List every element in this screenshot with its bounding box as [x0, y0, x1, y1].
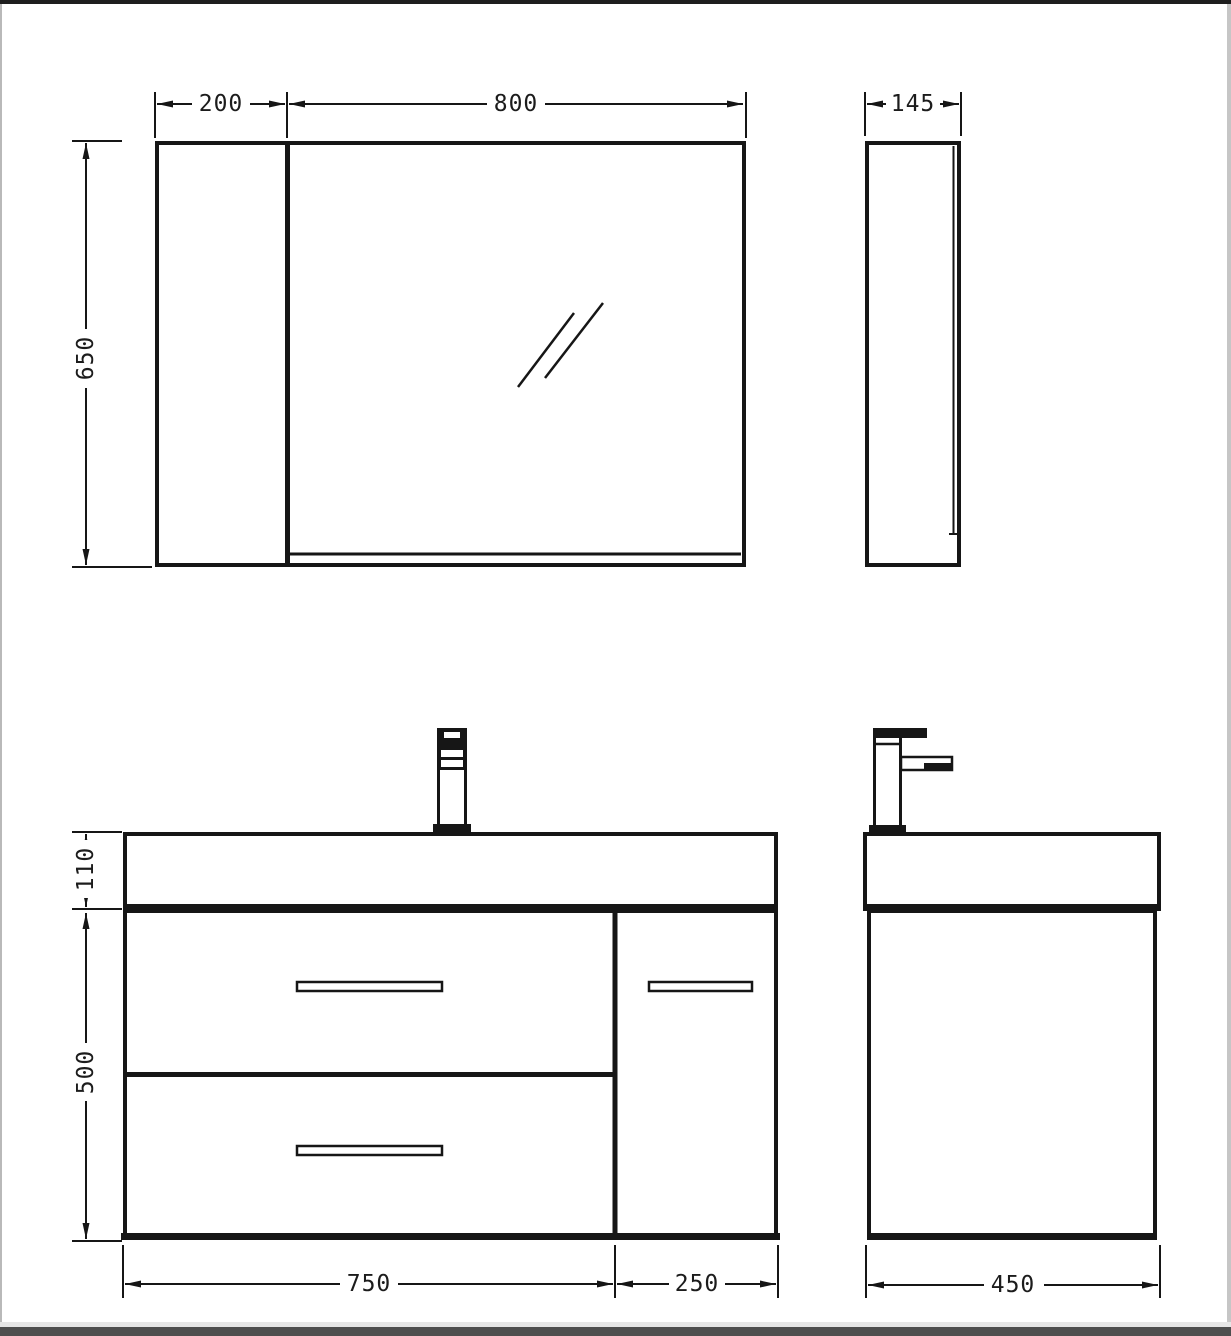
faucet-side-spout-tip [924, 763, 952, 771]
arrow-down [83, 1223, 90, 1239]
dimension-basin-height: 110 [72, 832, 122, 909]
arrow-right [1142, 1282, 1158, 1289]
dimension-mirror-glass-width: 800 [289, 91, 746, 138]
vanity-side-body-outline [869, 911, 1155, 1237]
arrow-left [157, 101, 173, 108]
mirror-front-view [157, 141, 744, 565]
faucet-front-base [433, 824, 471, 832]
dimension-mirror-depth: 145 [865, 91, 961, 136]
vanity-side-body-bottom-edge [867, 1233, 1157, 1240]
drawer-1-handle [297, 982, 442, 991]
vanity-side-view [863, 728, 1161, 1240]
dim-label-drawer-section-width: 750 [347, 1271, 392, 1297]
dim-label-cabinet-depth: 450 [991, 1272, 1036, 1298]
mirror-cabinet-outline [157, 143, 744, 565]
faucet-side [869, 728, 952, 832]
dim-label-mirror-glass-width: 800 [494, 91, 539, 117]
dimension-mirror-height: 650 [72, 141, 152, 567]
arrow-right [727, 101, 743, 108]
dim-label-mirror-depth: 145 [891, 91, 936, 117]
technical-drawing: 200 800 650 [0, 0, 1231, 1336]
arrow-down [83, 549, 90, 565]
arrow-left [868, 1282, 884, 1289]
faucet-front-notch [444, 732, 460, 738]
vanity-side-basin-outline [865, 834, 1159, 909]
vanity-body-bottom-edge [121, 1233, 780, 1240]
arrow-left [125, 1281, 141, 1288]
dimension-cabinet-height: 500 [72, 913, 122, 1241]
arrow-right [269, 101, 285, 108]
arrow-right [760, 1281, 776, 1288]
faucet-front [433, 728, 471, 832]
dim-label-mirror-left-width: 200 [199, 91, 244, 117]
faucet-front-slot-1 [441, 750, 463, 757]
page-border-top [0, 0, 1231, 4]
faucet-front-slot-2 [441, 760, 463, 767]
vanity-front-view [121, 728, 780, 1240]
page-border-bottom-dark [0, 1327, 1231, 1336]
door-handle [649, 982, 752, 991]
dimension-door-section-width: 250 [617, 1245, 778, 1298]
arrow-left [289, 101, 305, 108]
arrow-right [943, 101, 959, 108]
dim-label-basin-height: 110 [73, 847, 99, 892]
drawer-2-handle [297, 1146, 442, 1155]
dimension-drawer-section-width: 750 [123, 1245, 615, 1298]
dim-label-mirror-height: 650 [73, 336, 99, 381]
arrow-left [617, 1281, 633, 1288]
arrow-left [867, 101, 883, 108]
arrow-up [83, 913, 90, 929]
arrow-right [597, 1281, 613, 1288]
dimension-cabinet-depth: 450 [866, 1245, 1160, 1298]
page-border-bottom-light [0, 1322, 1231, 1327]
spec-sheet-page: 200 800 650 [0, 0, 1231, 1336]
page-border-left [0, 4, 2, 1324]
vanity-basin-outline [125, 834, 776, 909]
faucet-side-lever [873, 728, 927, 738]
dimension-mirror-left-width: 200 [155, 91, 287, 138]
arrow-up [83, 143, 90, 159]
mirror-side-outline [867, 143, 959, 565]
page-border-right [1227, 4, 1231, 1327]
dim-label-door-section-width: 250 [675, 1271, 720, 1297]
faucet-side-base [869, 825, 906, 832]
dim-label-cabinet-height: 500 [73, 1050, 99, 1095]
mirror-side-view [867, 143, 959, 565]
